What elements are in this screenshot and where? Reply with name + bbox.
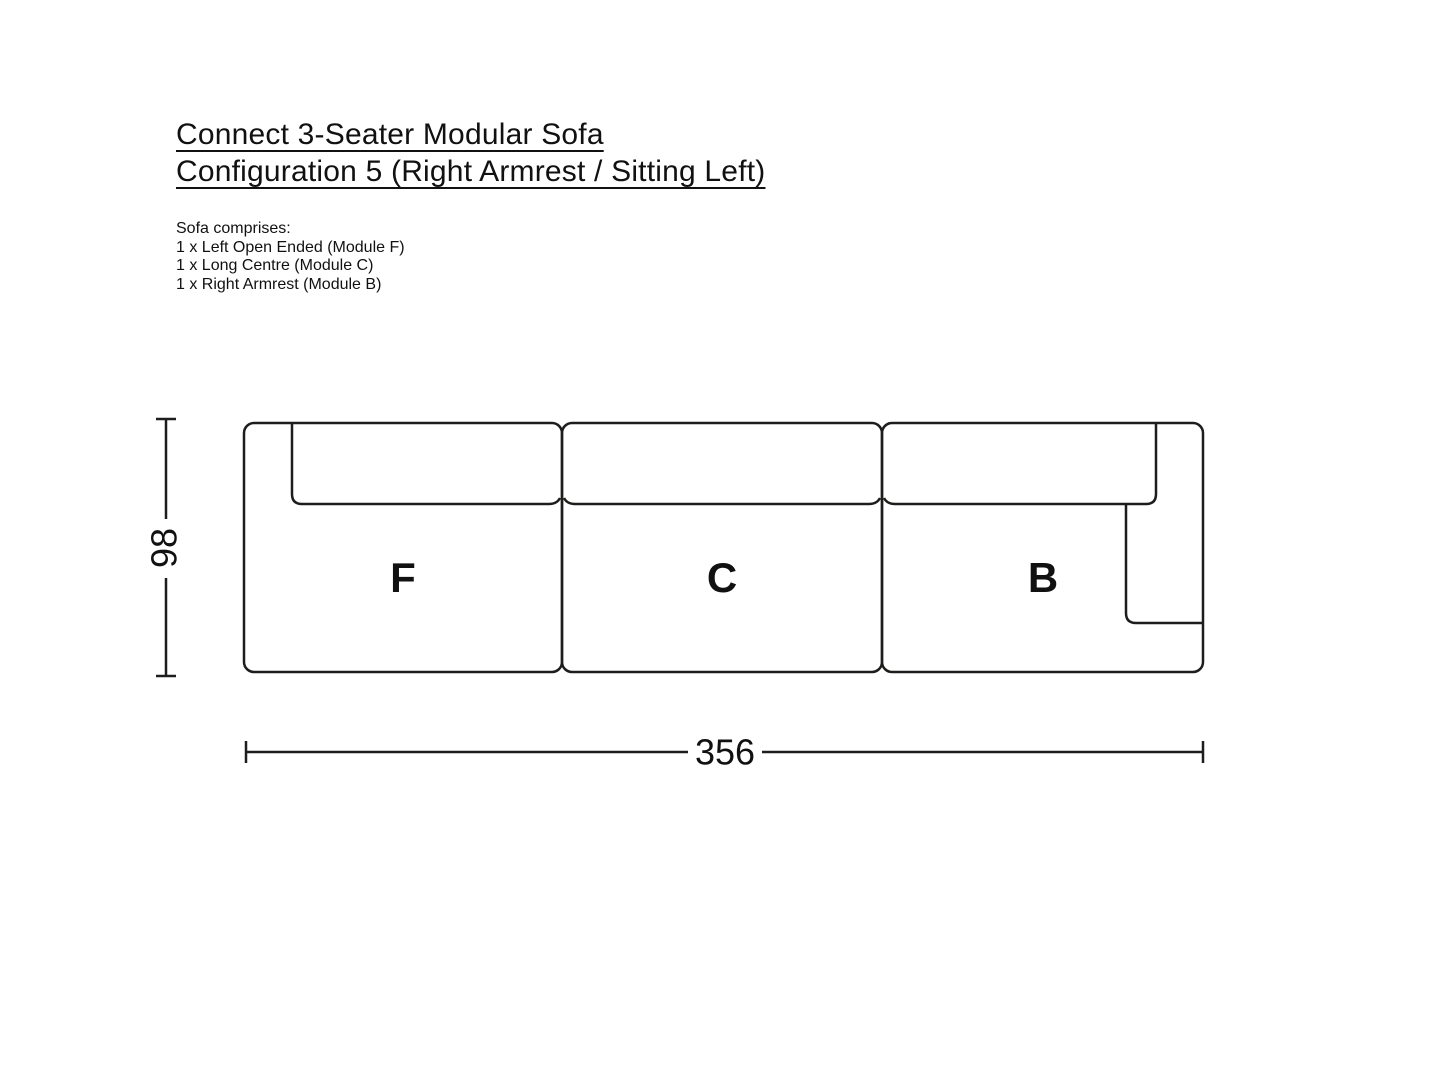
module-c-outline bbox=[562, 423, 882, 672]
width-dimension-label: 356 bbox=[695, 732, 755, 773]
module-b-backrest-line bbox=[884, 424, 1156, 504]
module-b-armrest-line bbox=[1126, 505, 1202, 623]
sofa-configuration-diagram: F C B 98 356 bbox=[0, 0, 1445, 1087]
module-f-backrest-line bbox=[292, 424, 560, 504]
module-f-label: F bbox=[390, 554, 416, 601]
module-b-label: B bbox=[1028, 554, 1058, 601]
module-c-label: C bbox=[707, 554, 737, 601]
height-dimension-label: 98 bbox=[144, 528, 185, 568]
module-c-backrest-line bbox=[564, 498, 880, 504]
